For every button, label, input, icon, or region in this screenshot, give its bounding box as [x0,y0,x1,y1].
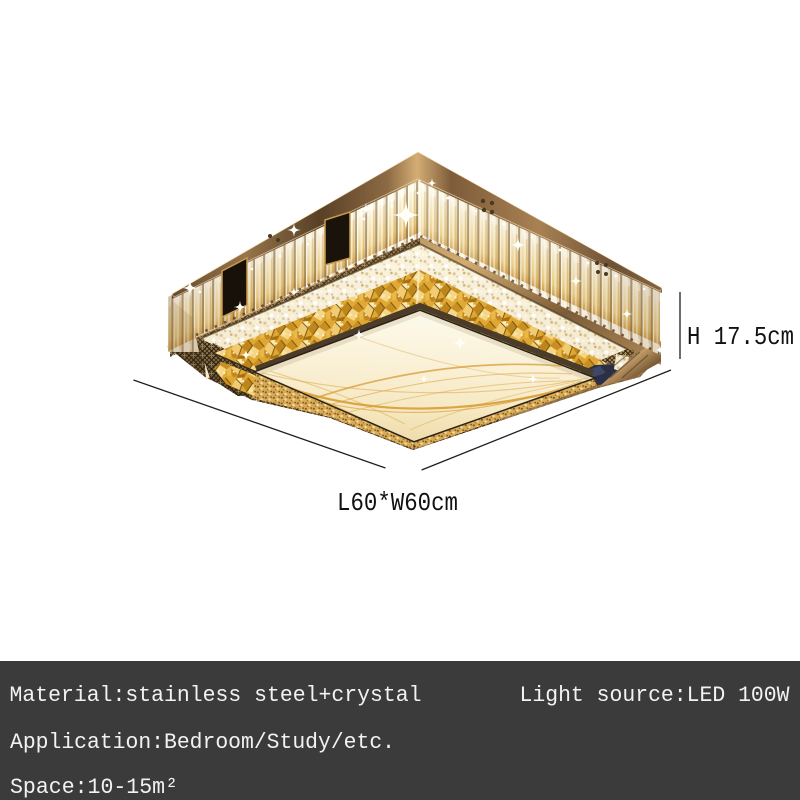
svg-text:Application:Bedroom/Study/etc.: Application:Bedroom/Study/etc. [10,730,395,755]
svg-text:H 17.5cm: H 17.5cm [687,322,794,352]
svg-text:Space:10-15m²: Space:10-15m² [10,775,178,800]
svg-text:L60*W60cm: L60*W60cm [337,488,458,518]
svg-text:Material:stainless steel+cryst: Material:stainless steel+crystal [10,683,422,708]
svg-text:Light source:LED 100W: Light source:LED 100W [520,683,791,708]
